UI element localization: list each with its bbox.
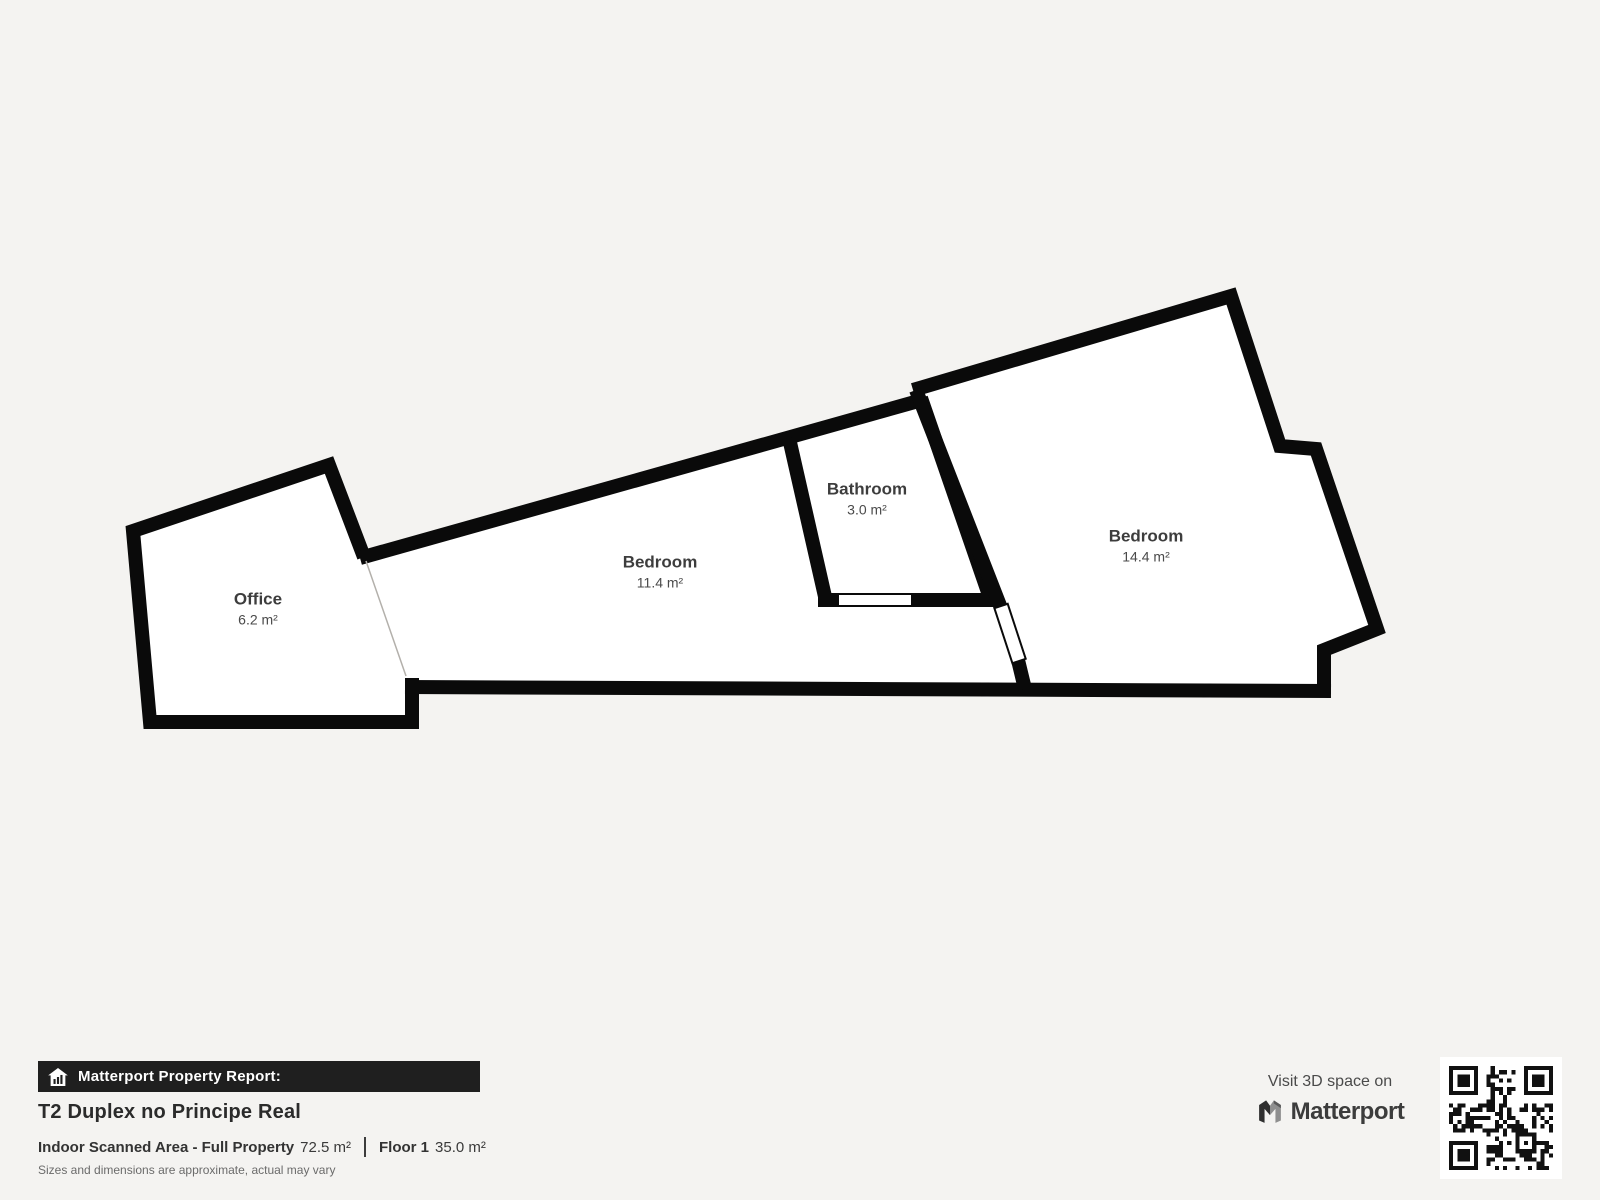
visit-3d-text: Visit 3D space on: [1232, 1073, 1428, 1091]
matterport-m-icon: [1256, 1098, 1284, 1126]
area-summary: Indoor Scanned Area - Full Property 72.5…: [38, 1136, 486, 1158]
room-fills: [133, 296, 1377, 722]
scanned-area-label: Indoor Scanned Area - Full Property: [38, 1139, 294, 1156]
bathroom-door-opening: [838, 594, 912, 606]
scanned-area-value: 72.5 m²: [300, 1139, 351, 1156]
qr-code-svg: [1449, 1066, 1553, 1170]
report-banner: Matterport Property Report:: [38, 1061, 480, 1092]
floor-label: Floor 1: [379, 1139, 429, 1156]
office-room-shape: [133, 465, 406, 722]
house-report-icon: [48, 1068, 68, 1086]
property-title: T2 Duplex no Principe Real: [38, 1101, 301, 1124]
property-report-page: Office 6.2 m² Bedroom 11.4 m² Bathroom 3…: [0, 0, 1600, 1200]
matterport-wordmark: Matterport: [1291, 1098, 1405, 1126]
floorplan-svg: [0, 0, 1600, 1200]
qr-code: [1440, 1057, 1562, 1179]
branding-block: Visit 3D space on Matterport: [1232, 1073, 1428, 1126]
divider: [364, 1137, 366, 1157]
banner-label: Matterport Property Report:: [78, 1068, 281, 1085]
matterport-logo: Matterport: [1232, 1098, 1428, 1126]
main-bottom-wall: [405, 687, 1331, 691]
floor-value: 35.0 m²: [435, 1139, 486, 1156]
disclaimer-text: Sizes and dimensions are approximate, ac…: [38, 1163, 335, 1177]
